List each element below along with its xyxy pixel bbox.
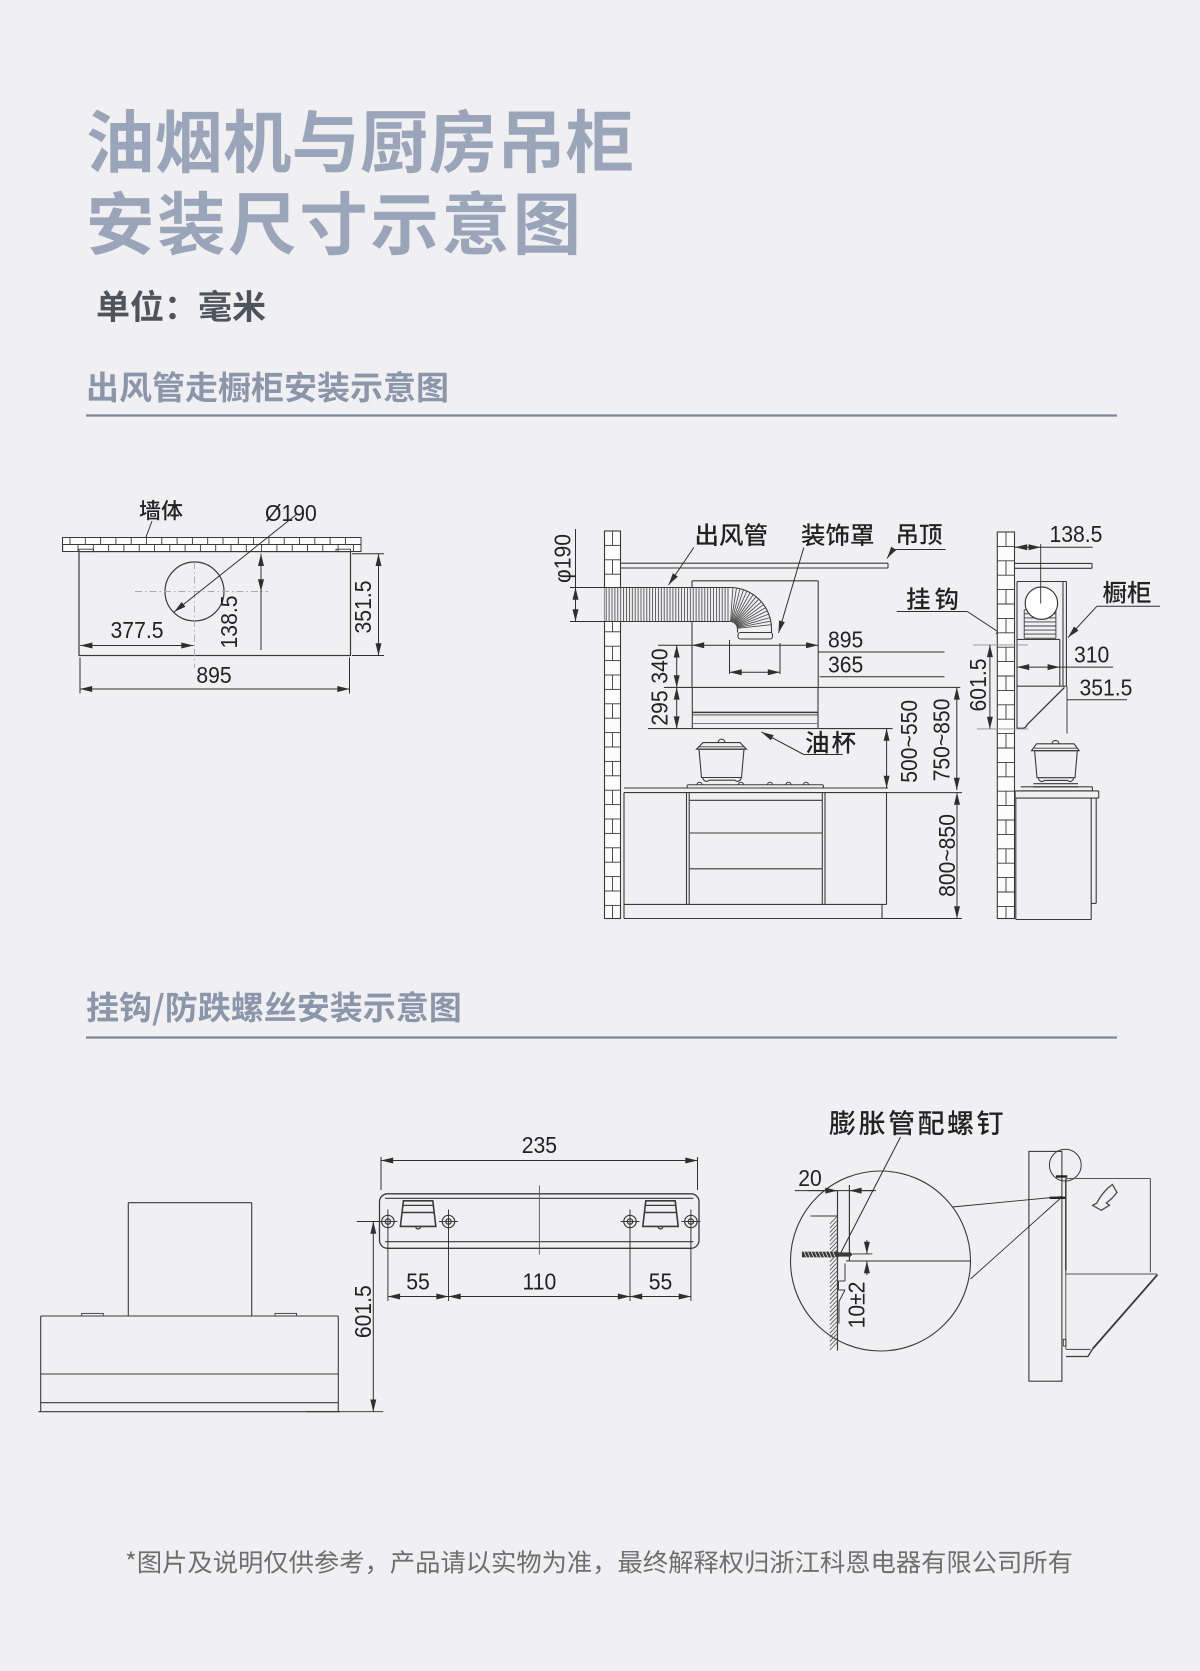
- svg-text:310: 310: [1074, 641, 1109, 667]
- svg-text:750~850: 750~850: [928, 699, 954, 782]
- svg-text:340: 340: [646, 648, 672, 683]
- svg-text:601.5: 601.5: [965, 659, 991, 712]
- svg-text:365: 365: [828, 651, 863, 677]
- svg-text:351.5: 351.5: [350, 581, 376, 634]
- svg-text:895: 895: [196, 662, 231, 688]
- svg-text:235: 235: [522, 1132, 557, 1158]
- svg-text:10±2: 10±2: [843, 1282, 869, 1329]
- svg-text:800~850: 800~850: [934, 814, 960, 897]
- svg-text:138.5: 138.5: [1050, 521, 1103, 547]
- svg-text:377.5: 377.5: [111, 617, 164, 643]
- svg-text:110: 110: [523, 1268, 557, 1294]
- svg-text:351.5: 351.5: [1080, 674, 1133, 700]
- svg-text:55: 55: [649, 1268, 673, 1294]
- svg-text:500~550: 500~550: [896, 700, 922, 783]
- svg-text:601.5: 601.5: [350, 1285, 376, 1338]
- svg-text:295: 295: [646, 690, 672, 725]
- svg-text:Ø190: Ø190: [265, 500, 317, 526]
- svg-text:138.5: 138.5: [216, 596, 242, 649]
- svg-text:20: 20: [798, 1165, 822, 1191]
- svg-text:φ190: φ190: [549, 534, 575, 583]
- svg-text:895: 895: [828, 626, 863, 652]
- svg-text:55: 55: [406, 1268, 430, 1294]
